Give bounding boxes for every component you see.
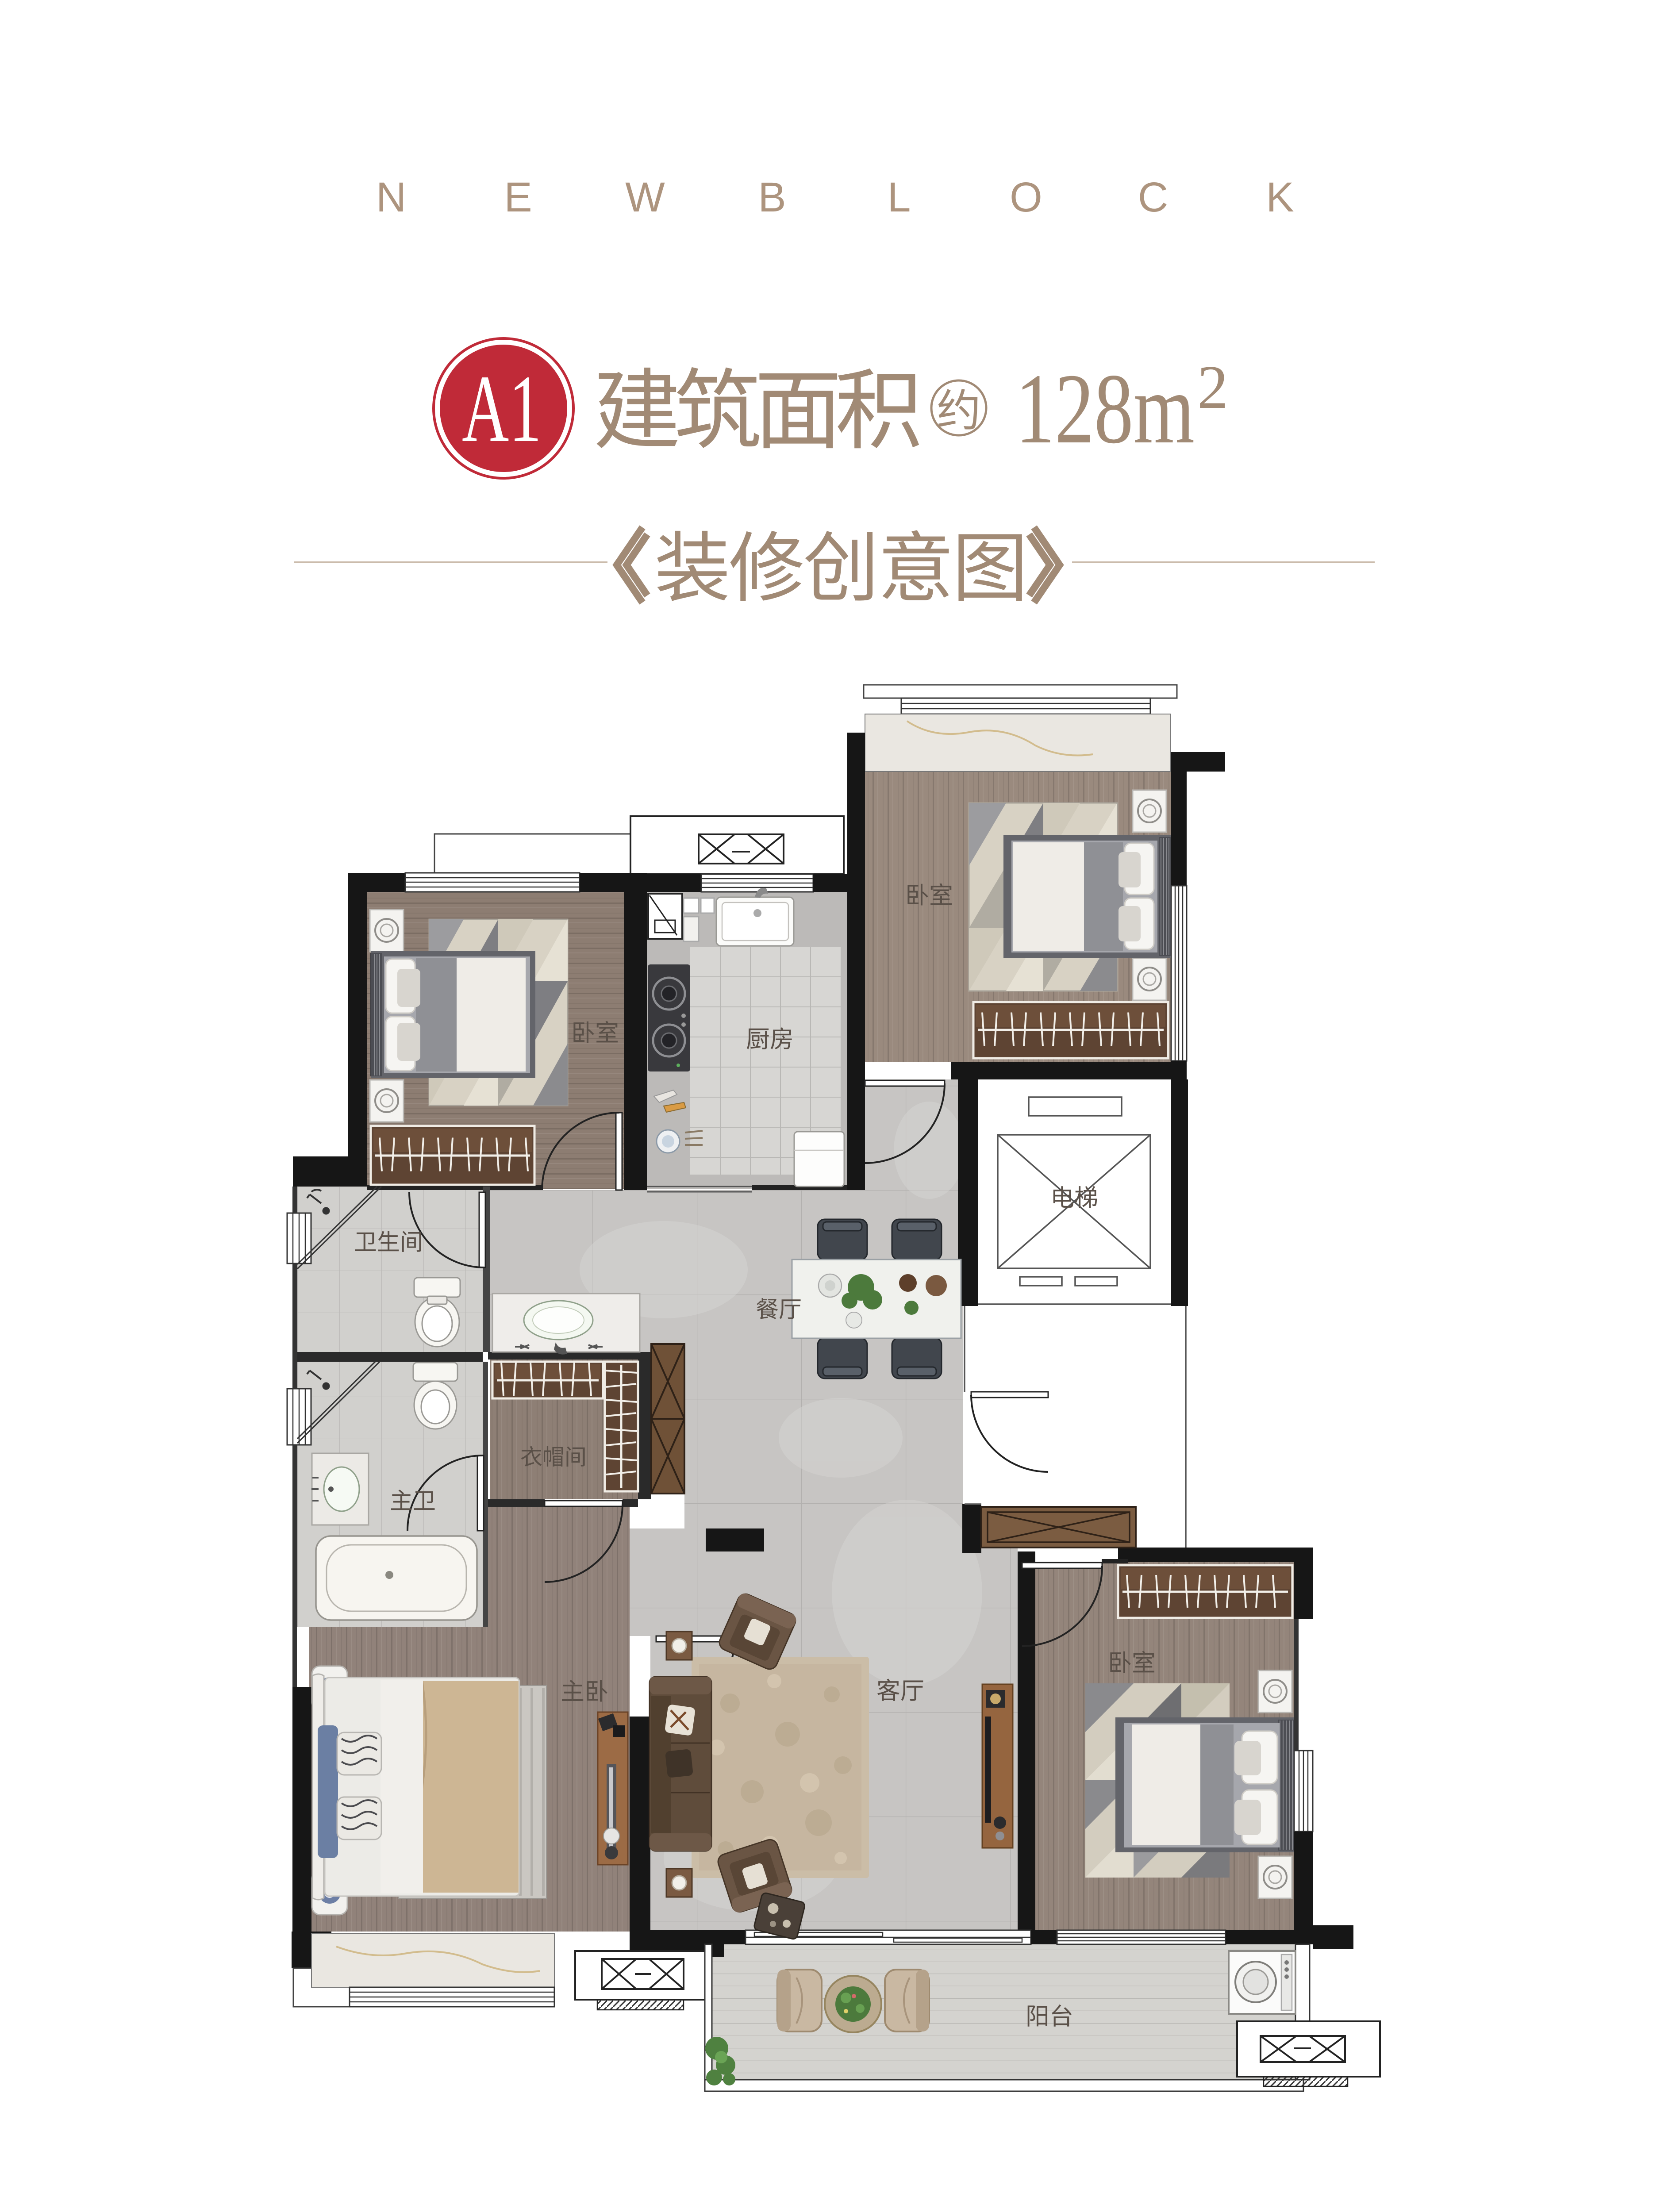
svg-text:E: E: [357, 2207, 395, 2212]
svg-text:N: N: [376, 174, 407, 221]
svg-text:A1: A1: [462, 356, 542, 462]
svg-text:C: C: [1138, 174, 1168, 221]
svg-text:128m: 128m: [1015, 353, 1195, 465]
svg-text:B: B: [758, 174, 786, 221]
svg-text:E: E: [504, 174, 532, 221]
svg-text:L: L: [914, 2207, 945, 2212]
svg-text:K: K: [1266, 174, 1294, 221]
svg-text:C: C: [1280, 2207, 1321, 2212]
svg-text:O: O: [1097, 2207, 1141, 2212]
svg-text:N: N: [176, 2207, 216, 2212]
svg-text:L: L: [888, 174, 911, 221]
svg-text:K: K: [1458, 2207, 1495, 2212]
svg-text:W: W: [534, 2207, 587, 2212]
svg-text:W: W: [625, 174, 665, 221]
svg-text:O: O: [1010, 174, 1042, 221]
svg-text:B: B: [733, 2207, 771, 2212]
svg-text:2: 2: [1197, 353, 1228, 422]
